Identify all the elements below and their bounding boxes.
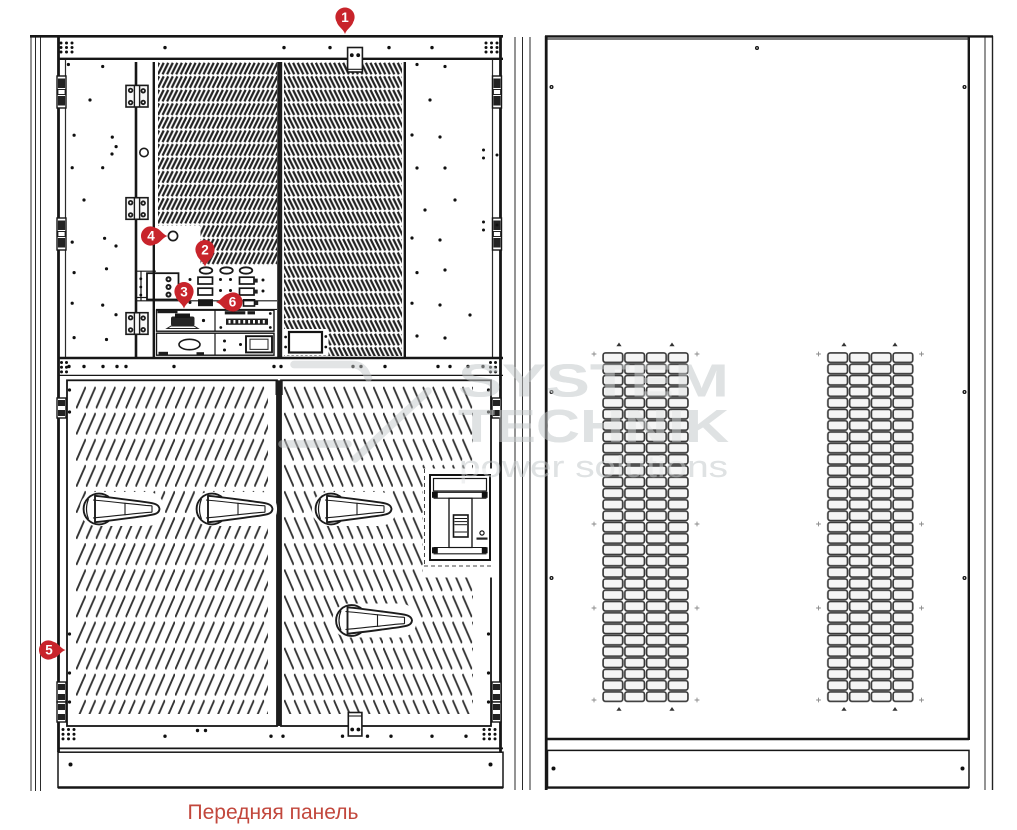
svg-text:power solutions: power solutions <box>459 449 728 484</box>
svg-text:TECHNIK: TECHNIK <box>458 400 729 452</box>
svg-text:5: 5 <box>45 642 53 657</box>
svg-text:Передняя панель: Передняя панель <box>188 801 359 824</box>
svg-text:1: 1 <box>341 10 349 25</box>
svg-text:SYSTEM: SYSTEM <box>458 355 729 407</box>
svg-text:2: 2 <box>201 242 209 257</box>
svg-text:6: 6 <box>229 294 237 309</box>
svg-text:4: 4 <box>147 228 155 243</box>
svg-text:3: 3 <box>180 284 188 299</box>
